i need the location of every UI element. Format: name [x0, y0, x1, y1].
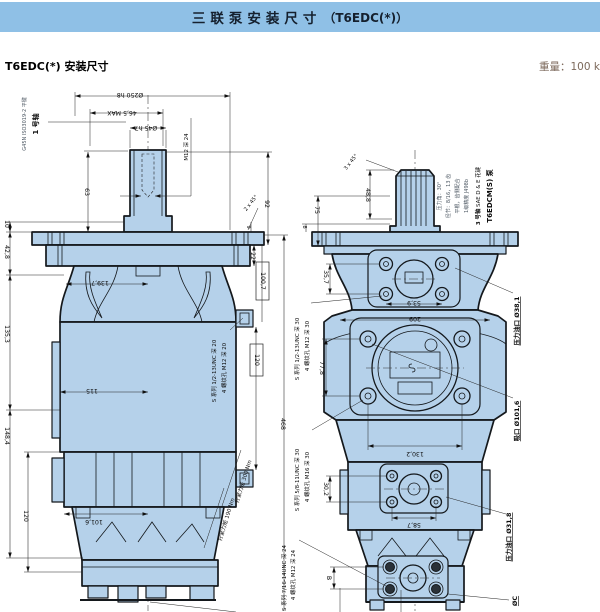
dim-101-6: 101,6 [85, 518, 103, 525]
shaft3-spline-type: SAE D & E 花键 [474, 166, 482, 208]
dim-48-8: 48,8 [364, 188, 371, 202]
left-shaft [124, 150, 172, 232]
shaft1-label: 1 号轴 [31, 113, 40, 134]
note-holes-unc58-30: S 系列 5/8-11UNC 深 30 [293, 448, 301, 511]
port-pressure-3-label: ØC [511, 596, 519, 606]
dim-77-8: 77,8 [318, 361, 325, 375]
spline-spec-4: 压力角：30° [436, 181, 443, 210]
dim-42-8: 42,8 [3, 245, 10, 259]
spline-spec-1: 1级精度 J498b [463, 179, 470, 213]
dim-130-2: 130,2 [406, 450, 424, 457]
dim-pilot-diameter: Ø250 h8 [117, 91, 144, 99]
port-suction-label: 吸口 Ø101,6 [513, 400, 521, 441]
left-view: Ø250 h8 46,5 MAX Ø45 h7 M12 深 24 63 1 号轴… [3, 91, 288, 612]
dim-8: 8 [301, 225, 307, 228]
dim-75: 75 [313, 206, 320, 214]
right-view: 3 x 45° 48,8 75 8 35,7 53,9 209 77,8 130… [280, 150, 521, 612]
dim-120-left: 120 [22, 510, 29, 522]
dim-53-9: 53,9 [407, 299, 421, 306]
dim-shaft-diameter: Ø45 h7 [135, 124, 158, 132]
pump-drawing: Ø250 h8 46,5 MAX Ø45 h7 M12 深 24 63 1 号轴… [0, 0, 600, 612]
note-holes-m16-30: 4 螺纹孔 M16 深 30 [303, 451, 311, 502]
dim-chamfer-3x45: 3 x 45° [343, 153, 360, 172]
spline-spec-3: 径节：8/16，13 齿 [445, 174, 452, 218]
spline-spec-2: 平根，齿侧配合 [454, 178, 461, 213]
left-ribbed-section [52, 452, 236, 507]
dim-58-7: 58,7 [407, 521, 421, 528]
shaft-thread-note: M12 深 24 [182, 133, 190, 161]
note-holes-m12-24: 4 螺纹孔 M12 深 24 [289, 549, 297, 600]
left-mount-flange [32, 232, 264, 266]
note-holes-unc716-24: S 系列 7/16-14UNC 深 24 [280, 544, 288, 611]
right-suction-body [324, 310, 506, 420]
dim-22: 22 [249, 252, 256, 260]
dim-100-7: 100,7 [259, 272, 266, 290]
dim-9: 9 [245, 225, 251, 228]
dim-63: 63 [83, 188, 90, 196]
dim-30-2: 30,2 [322, 482, 329, 496]
dim-10: 10 [3, 220, 10, 228]
right-spline-shaft [390, 170, 440, 232]
note-holes-m12-30: 4 螺纹孔 M12 深 30 [303, 320, 311, 371]
dim-135-3: 135,3 [3, 325, 10, 343]
dim-468: 468 [279, 418, 286, 430]
pump-model-label: T6EDCM(S) 泵 [485, 169, 494, 222]
port-pressure-2-label: 压力油口 Ø31,8 [504, 512, 513, 562]
left-bell-housing [60, 266, 236, 322]
right-mid-body [340, 462, 490, 530]
dim-120-boxed: 120 [253, 354, 260, 366]
shaft3-label: 3 号轴 SAE D & E 花键 [474, 166, 482, 225]
shaft3-number: 3 号轴 [474, 208, 482, 225]
note-holes-unc12-30: S 系列 1/2-13UNC 深 30 [293, 317, 301, 380]
dim-key-max: 46,5 MAX [106, 109, 136, 116]
right-bottom-body [340, 556, 464, 612]
dim-115: 115 [86, 387, 98, 394]
dim-B: B [325, 576, 332, 580]
dim-148-4: 148,4 [3, 427, 10, 445]
port-pressure-1-label: 压力油口 Ø38,1 [512, 297, 521, 346]
side-port-holes-note: 4 螺纹孔 M12 深 20 [220, 342, 228, 393]
dim-139-7: 139,7 [91, 279, 109, 286]
side-port-holes-note-sae: S 系列 1/2-13UNC 深 20 [210, 339, 218, 402]
dim-209: 209 [409, 315, 421, 322]
shaft1-spec: G45N ISO3019-2 平键 [21, 97, 28, 150]
dim-35-7: 35,7 [322, 270, 329, 284]
dim-92: 92 [263, 200, 270, 208]
